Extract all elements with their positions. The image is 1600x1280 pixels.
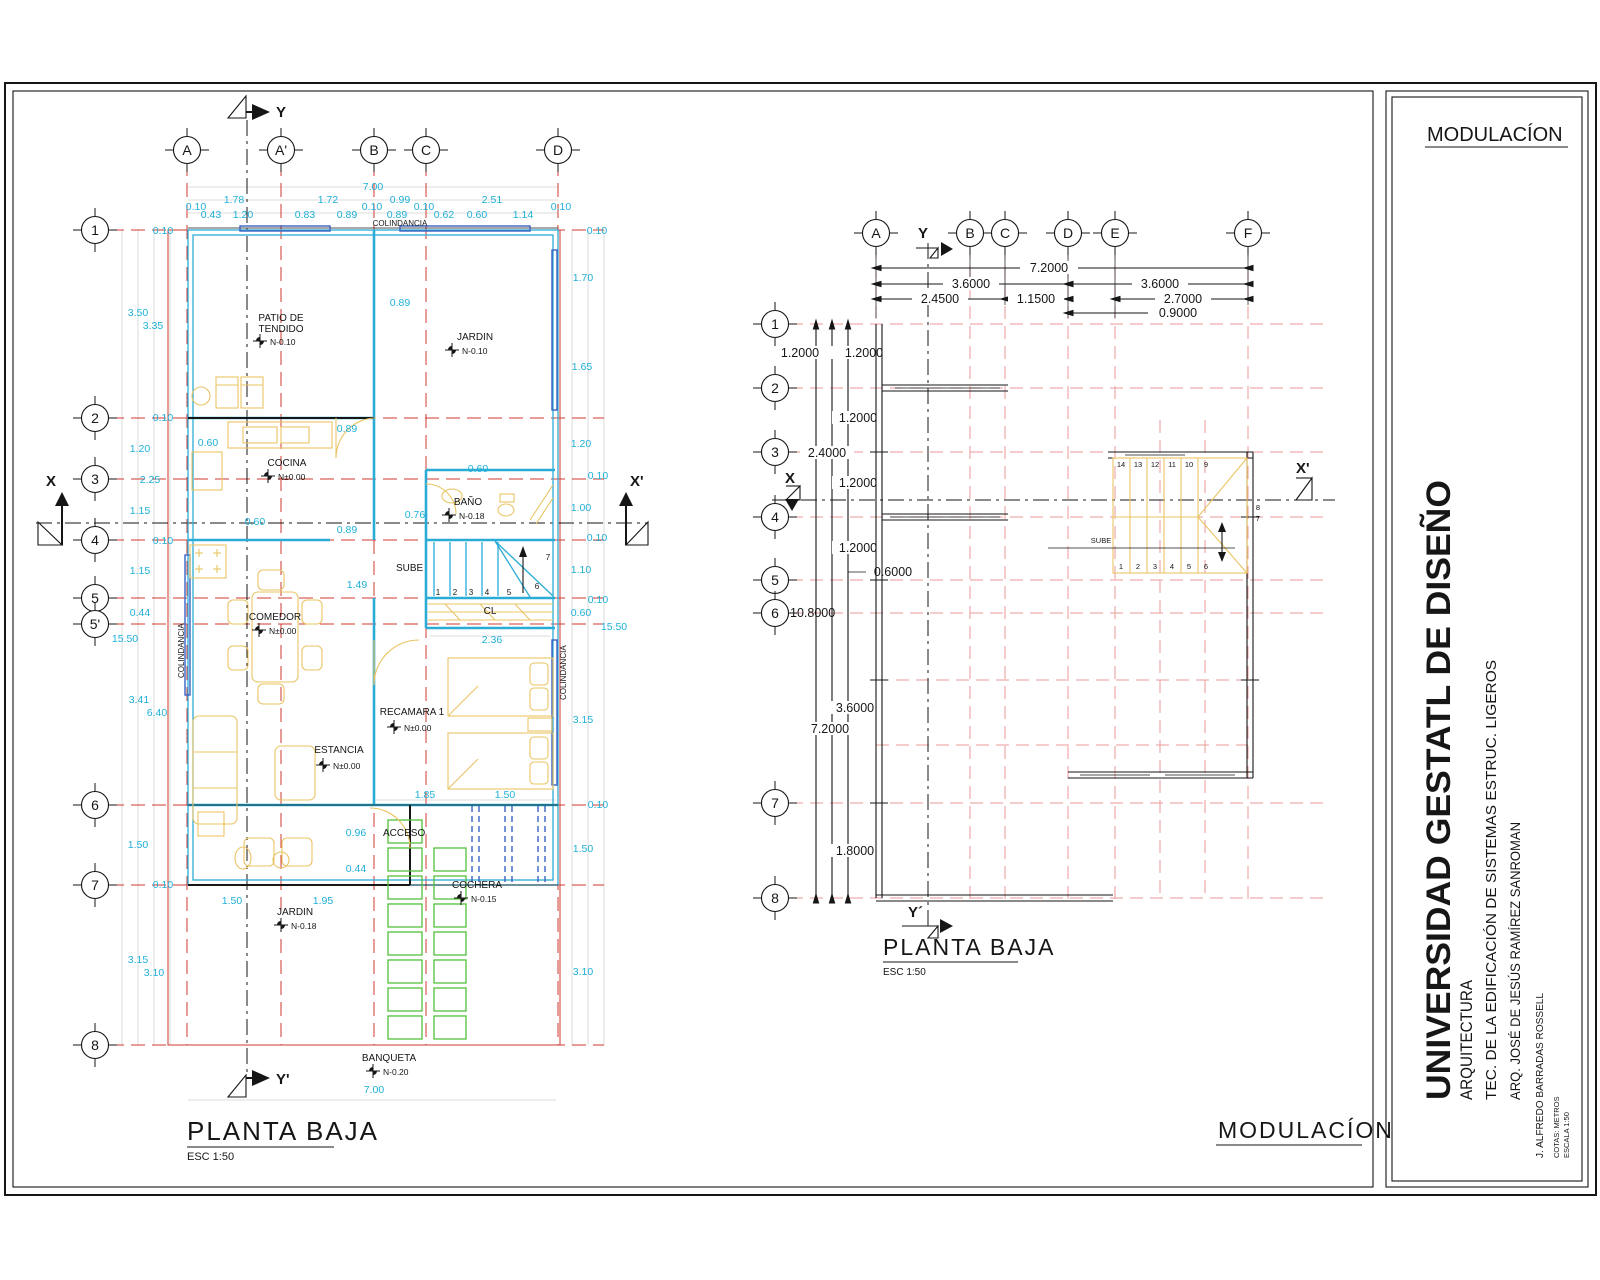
sube-label: SUBE xyxy=(1091,536,1111,545)
axis-label-y: Y xyxy=(276,104,286,121)
dim-label: 1.20 xyxy=(571,438,592,450)
grid-bubble-label: 5' xyxy=(90,616,100,632)
stair-number: 4 xyxy=(1170,562,1174,571)
dim-label: 3.6000 xyxy=(1141,277,1179,291)
axis-label-x2: X' xyxy=(1296,460,1310,477)
dim-label: 1.8000 xyxy=(836,844,874,858)
drawing-sheet: MODULACÍON UNIVERSIDAD GESTATL DE DISEÑO… xyxy=(0,0,1600,1280)
dim-label: 2.36 xyxy=(482,634,503,646)
stair-number: 12 xyxy=(1151,460,1159,469)
dimensions-right: 0.10 1.70 1.65 1.20 0.10 1.00 0.10 1.10 … xyxy=(571,225,628,978)
room-labels: PATIO DE TENDIDO N-0.10 JARDIN N-0.10 CO… xyxy=(177,313,568,1078)
dim-label: 0.60 xyxy=(198,437,219,449)
colindancia-label: COLINDANCIA xyxy=(559,645,568,700)
room-label: JARDIN xyxy=(457,332,493,343)
dim-label: 3.15 xyxy=(573,714,594,726)
dim-label: 1.50 xyxy=(495,789,516,801)
stair-number: 5 xyxy=(1187,562,1191,571)
sheet-frame xyxy=(5,83,1596,1195)
professor-name: ARQ. JOSÉ DE JESÚS RAMÍREZ SANROMAN xyxy=(1508,822,1523,1100)
grid-bubbles-rows: 1 2 3 4 5 5' 6 7 8 xyxy=(73,208,117,1067)
stair-number: 6 xyxy=(535,582,540,591)
dim-label: 0.99 xyxy=(390,194,411,206)
stairs: 1 2 3 4 5 6 7 xyxy=(434,541,553,597)
grid-bubble-label: 2 xyxy=(771,380,779,396)
grid-bubble-label: 6 xyxy=(771,605,779,621)
level-label: N-0.15 xyxy=(471,894,497,904)
dim-label: 0.83 xyxy=(295,209,316,221)
stair-number: 7 xyxy=(546,553,551,562)
grid-bubble-label: A xyxy=(182,142,192,158)
grid-bubble-label: 4 xyxy=(91,532,99,548)
dimensions-left: 0.10 3.50 3.35 0.10 1.20 2.25 1.15 0.10 … xyxy=(112,225,174,979)
room-label: COCHERA xyxy=(452,880,502,891)
left-plan-title: PLANTA BAJA ESC 1:50 xyxy=(187,1116,379,1163)
titleblock-heading: MODULACÍON xyxy=(1427,123,1563,146)
grid-bubble-label: A' xyxy=(275,142,287,158)
dim-label: 0.6000 xyxy=(874,565,912,579)
faculty-name: ARQUITECTURA xyxy=(1457,979,1476,1100)
dim-label: 1.00 xyxy=(571,502,592,514)
dim-label: 1.72 xyxy=(318,194,339,206)
dim-label: 1.50 xyxy=(573,843,594,855)
dim-label: 1.20 xyxy=(233,209,254,221)
dim-label: 7.2000 xyxy=(1030,261,1068,275)
room-label: SUBE xyxy=(396,563,424,574)
axis-marker-y: Y xyxy=(916,225,953,258)
dim-label: 1.50 xyxy=(128,839,149,851)
stair-number: 5 xyxy=(507,588,512,597)
grid-bubble-label: 7 xyxy=(771,795,779,811)
dim-label: 1.14 xyxy=(513,209,534,221)
modulation-grid xyxy=(790,246,1330,900)
bed xyxy=(448,733,553,789)
dim-label: 0.10 xyxy=(153,225,174,237)
plan-scale: ESC 1:50 xyxy=(883,967,926,978)
dim-label: 1.2000 xyxy=(781,346,819,360)
bed xyxy=(448,658,553,716)
course-name: TEC. DE LA EDIFICACIÓN DE SISTEMAS ESTRU… xyxy=(1483,660,1500,1100)
dim-label: 2.25 xyxy=(140,474,161,486)
room-label: COCINA xyxy=(268,458,307,469)
grid-bubble-label: D xyxy=(553,142,563,158)
dim-label: 1.15 xyxy=(130,565,151,577)
room-label: BANQUETA xyxy=(362,1053,417,1064)
dim-label: 3.50 xyxy=(128,307,149,319)
grid-bubble-label: 2 xyxy=(91,410,99,426)
grid-bubble-label: 8 xyxy=(91,1037,99,1053)
dim-label: 0.89 xyxy=(337,524,358,536)
stair-number: 1 xyxy=(1119,562,1123,571)
dim-label: 0.10 xyxy=(153,879,174,891)
axis-marker-y: Y xyxy=(228,96,286,121)
dim-label: 1.70 xyxy=(573,272,594,284)
dim-label: 2.7000 xyxy=(1164,292,1202,306)
grid-bubble-label: D xyxy=(1063,225,1073,241)
dim-label: 7.00 xyxy=(363,181,384,193)
grid-bubble-label: C xyxy=(421,142,431,158)
grid-bubble-label: A xyxy=(871,225,881,241)
axis-label-y: Y xyxy=(918,225,928,242)
left-plan: A A' B C D 1 2 3 4 5 5' 6 7 8 Y xyxy=(36,96,648,1163)
room-label: PATIO DE xyxy=(258,313,304,324)
dim-label: 0.10 xyxy=(153,535,174,547)
dim-label: 1.78 xyxy=(224,194,245,206)
dimensions-horizontal: 7.2000 3.6000 3.6000 2.4500 1.1500 2.700… xyxy=(876,246,1248,320)
level-label: N-0.18 xyxy=(459,511,485,521)
stair-number: 7 xyxy=(1256,514,1260,523)
dim-label: 1.2000 xyxy=(845,346,883,360)
level-label: N±0.00 xyxy=(278,472,306,482)
dim-label: 1.85 xyxy=(415,789,436,801)
dim-label: 0.10 xyxy=(588,594,609,606)
dim-label: 15.50 xyxy=(112,633,138,645)
grid-bubble-label: 3 xyxy=(771,444,779,460)
dim-label: 1.2000 xyxy=(839,476,877,490)
scale-note: ESCALA 1:50 xyxy=(1562,1112,1571,1158)
dim-label: 10.8000 xyxy=(790,606,835,620)
dim-label: 0.62 xyxy=(434,209,455,221)
dimensions-top: 7.00 1.78 1.72 0.99 2.51 0.10 0.43 1.20 … xyxy=(186,181,572,228)
stair-number: 2 xyxy=(1136,562,1140,571)
level-label: N-0.20 xyxy=(383,1067,409,1077)
axis-label-y2: Y' xyxy=(276,1071,290,1088)
stair-number: 10 xyxy=(1185,460,1193,469)
dim-label: 0.10 xyxy=(551,201,572,213)
grid-bubble-label: B xyxy=(369,142,378,158)
axis-marker-x: X xyxy=(38,473,69,545)
dim-label: 0.60 xyxy=(245,516,266,528)
dim-label: 3.35 xyxy=(143,320,164,332)
stair-number: 8 xyxy=(1256,503,1260,512)
extension-lines xyxy=(122,187,604,1100)
colindancia-label: COLINDANCIA xyxy=(373,219,428,228)
dim-label: 3.6000 xyxy=(836,701,874,715)
stair-number: 3 xyxy=(1153,562,1157,571)
dim-label: 2.4500 xyxy=(921,292,959,306)
dim-label: 1.2000 xyxy=(839,411,877,425)
university-name: UNIVERSIDAD GESTATL DE DISEÑO xyxy=(1420,480,1458,1100)
axis-label-x2: X' xyxy=(630,473,644,490)
stair-number: 6 xyxy=(1204,562,1208,571)
dim-label: 1.2000 xyxy=(839,541,877,555)
dim-label: 15.50 xyxy=(601,621,627,633)
axis-label-x: X xyxy=(46,473,56,490)
right-plan: A B C D E F 1 2 3 4 5 6 7 8 xyxy=(753,211,1394,1145)
garage-gate xyxy=(472,806,545,882)
dim-label: 0.43 xyxy=(201,209,222,221)
level-label: N±0.00 xyxy=(333,761,361,771)
dim-label: 0.10 xyxy=(414,201,435,213)
dim-label: 2.4000 xyxy=(808,446,846,460)
room-label: JARDIN xyxy=(277,907,313,918)
dim-label: 0.44 xyxy=(130,607,151,619)
dim-label: 0.44 xyxy=(346,863,367,875)
sofa xyxy=(193,716,237,824)
author-name: J. ALFREDO BARRADAS ROSSELL xyxy=(1535,993,1546,1158)
dim-label: 0.89 xyxy=(337,209,358,221)
stairs: 14 13 12 11 10 9 1 2 3 4 5 6 8 7 SUBE xyxy=(1048,458,1260,573)
dim-label: 0.89 xyxy=(390,297,411,309)
dim-label: 1.50 xyxy=(222,895,243,907)
dim-label: 3.10 xyxy=(573,966,594,978)
grid-bubble-label: B xyxy=(965,225,974,241)
dim-label: 0.10 xyxy=(587,225,608,237)
grid-bubble-label: 1 xyxy=(771,316,779,332)
dim-label: 1.15 xyxy=(130,505,151,517)
dim-label: 0.60 xyxy=(467,209,488,221)
room-label: TENDIDO xyxy=(259,324,304,335)
dim-label: 0.10 xyxy=(362,201,383,213)
modulation-heading: MODULACÍON xyxy=(1216,1117,1394,1145)
dim-label: 3.41 xyxy=(129,694,150,706)
grid-bubbles-columns: A A' B C D xyxy=(165,128,580,172)
stair-number: 2 xyxy=(453,588,458,597)
axis-label-y2: Y´ xyxy=(908,904,923,921)
dim-label: 1.49 xyxy=(347,579,368,591)
walls xyxy=(188,228,558,885)
dim-label: 3.10 xyxy=(144,967,165,979)
dim-label: 1.1500 xyxy=(1017,292,1055,306)
dim-label: 1.95 xyxy=(313,895,334,907)
stair-number: 3 xyxy=(469,588,474,597)
right-plan-title: PLANTA BAJA ESC 1:50 xyxy=(883,934,1055,978)
axis-marker-y2: Y' xyxy=(228,1070,290,1097)
stair-number: 1 xyxy=(436,588,441,597)
level-label: N-0.10 xyxy=(270,337,296,347)
level-label: N-0.18 xyxy=(291,921,317,931)
dim-label: 0.10 xyxy=(153,412,174,424)
grid-bubble-label: C xyxy=(1000,225,1010,241)
dim-label: 2.51 xyxy=(482,194,503,206)
room-label: RECAMARA 1 xyxy=(380,707,445,718)
dim-label: 0.9000 xyxy=(1159,306,1197,320)
level-label: N±0.00 xyxy=(404,723,432,733)
dim-label: 0.96 xyxy=(346,827,367,839)
title-block: MODULACÍON UNIVERSIDAD GESTATL DE DISEÑO… xyxy=(1420,123,1571,1158)
dim-label: 1.65 xyxy=(572,361,593,373)
stair-number: 4 xyxy=(485,588,490,597)
dim-label: 0.76 xyxy=(405,509,426,521)
dim-label: 7.2000 xyxy=(811,722,849,736)
axis-marker-x: X xyxy=(785,470,800,511)
colindancia-label: COLINDANCIA xyxy=(177,623,186,678)
pavers xyxy=(388,820,466,1039)
stair-number: 9 xyxy=(1204,460,1208,469)
level-label: N±0.00 xyxy=(269,626,297,636)
dim-label: 6.40 xyxy=(147,707,168,719)
dim-label: 0.60 xyxy=(468,463,489,475)
stair-number: 14 xyxy=(1117,460,1125,469)
axis-marker-x2: X' xyxy=(619,473,648,545)
dim-label: 0.60 xyxy=(571,607,592,619)
dim-label: 0.89 xyxy=(337,423,358,435)
grid-bubble-label: 4 xyxy=(771,509,779,525)
axis-label-x: X xyxy=(785,470,795,487)
grid-bubble-label: 8 xyxy=(771,890,779,906)
room-label: ACCESO xyxy=(383,828,425,839)
dim-label: 0.10 xyxy=(588,470,609,482)
room-label: COMEDOR xyxy=(249,612,301,623)
stair-number: 11 xyxy=(1168,460,1176,469)
dim-label: 7.00 xyxy=(364,1084,385,1096)
grid-bubble-label: 5 xyxy=(771,572,779,588)
stair-number: 13 xyxy=(1134,460,1142,469)
modulation-label: MODULACÍON xyxy=(1218,1117,1394,1143)
room-label: CL xyxy=(484,606,497,617)
axis-marker-x2: X' xyxy=(1296,460,1312,500)
grid-bubble-label: F xyxy=(1244,225,1253,241)
grid-bubble-label: 3 xyxy=(91,471,99,487)
grid-bubble-label: E xyxy=(1110,225,1119,241)
room-label: ESTANCIA xyxy=(314,745,364,756)
dim-label: 0.10 xyxy=(587,532,608,544)
dimensions-vertical: 1.2000 1.2000 1.2000 2.4000 1.2000 1.200… xyxy=(770,324,912,898)
grid-bubble-label: 7 xyxy=(91,877,99,893)
dim-label: 1.10 xyxy=(571,564,592,576)
dim-label: 1.20 xyxy=(130,443,151,455)
plan-title: PLANTA BAJA xyxy=(187,1116,379,1146)
plan-scale: ESC 1:50 xyxy=(187,1151,234,1163)
grid-bubble-label: 6 xyxy=(91,797,99,813)
dim-label: 0.10 xyxy=(588,799,609,811)
dim-label: 3.6000 xyxy=(952,277,990,291)
level-label: N-0.10 xyxy=(462,346,488,356)
grid-bubble-label: 1 xyxy=(91,222,99,238)
room-label: BAÑO xyxy=(454,495,483,508)
dim-label: 3.15 xyxy=(128,954,149,966)
units-note: COTAS: METROS xyxy=(1552,1096,1561,1158)
plan-title: PLANTA BAJA xyxy=(883,934,1055,960)
